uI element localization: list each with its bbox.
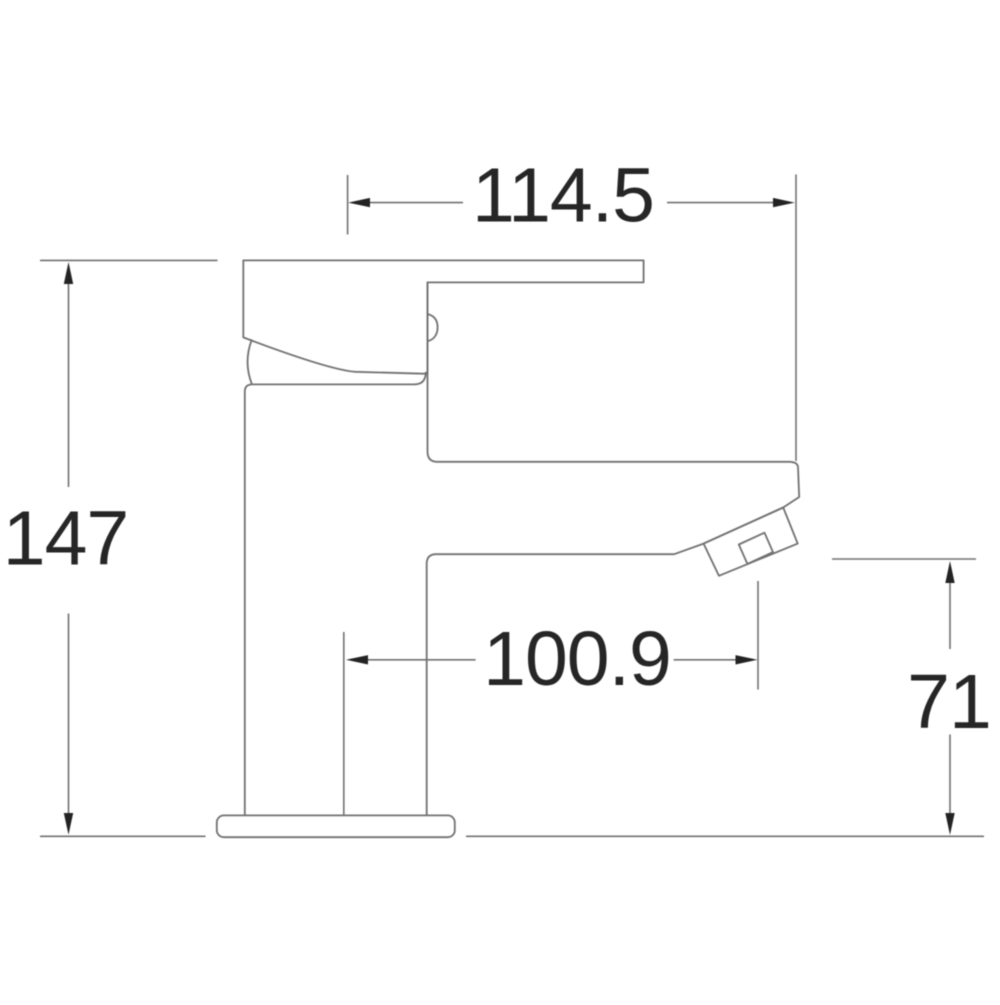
- svg-text:147: 147: [3, 496, 128, 582]
- svg-text:114.5: 114.5: [472, 153, 654, 239]
- svg-text:100.9: 100.9: [483, 616, 671, 702]
- svg-text:71: 71: [907, 659, 991, 745]
